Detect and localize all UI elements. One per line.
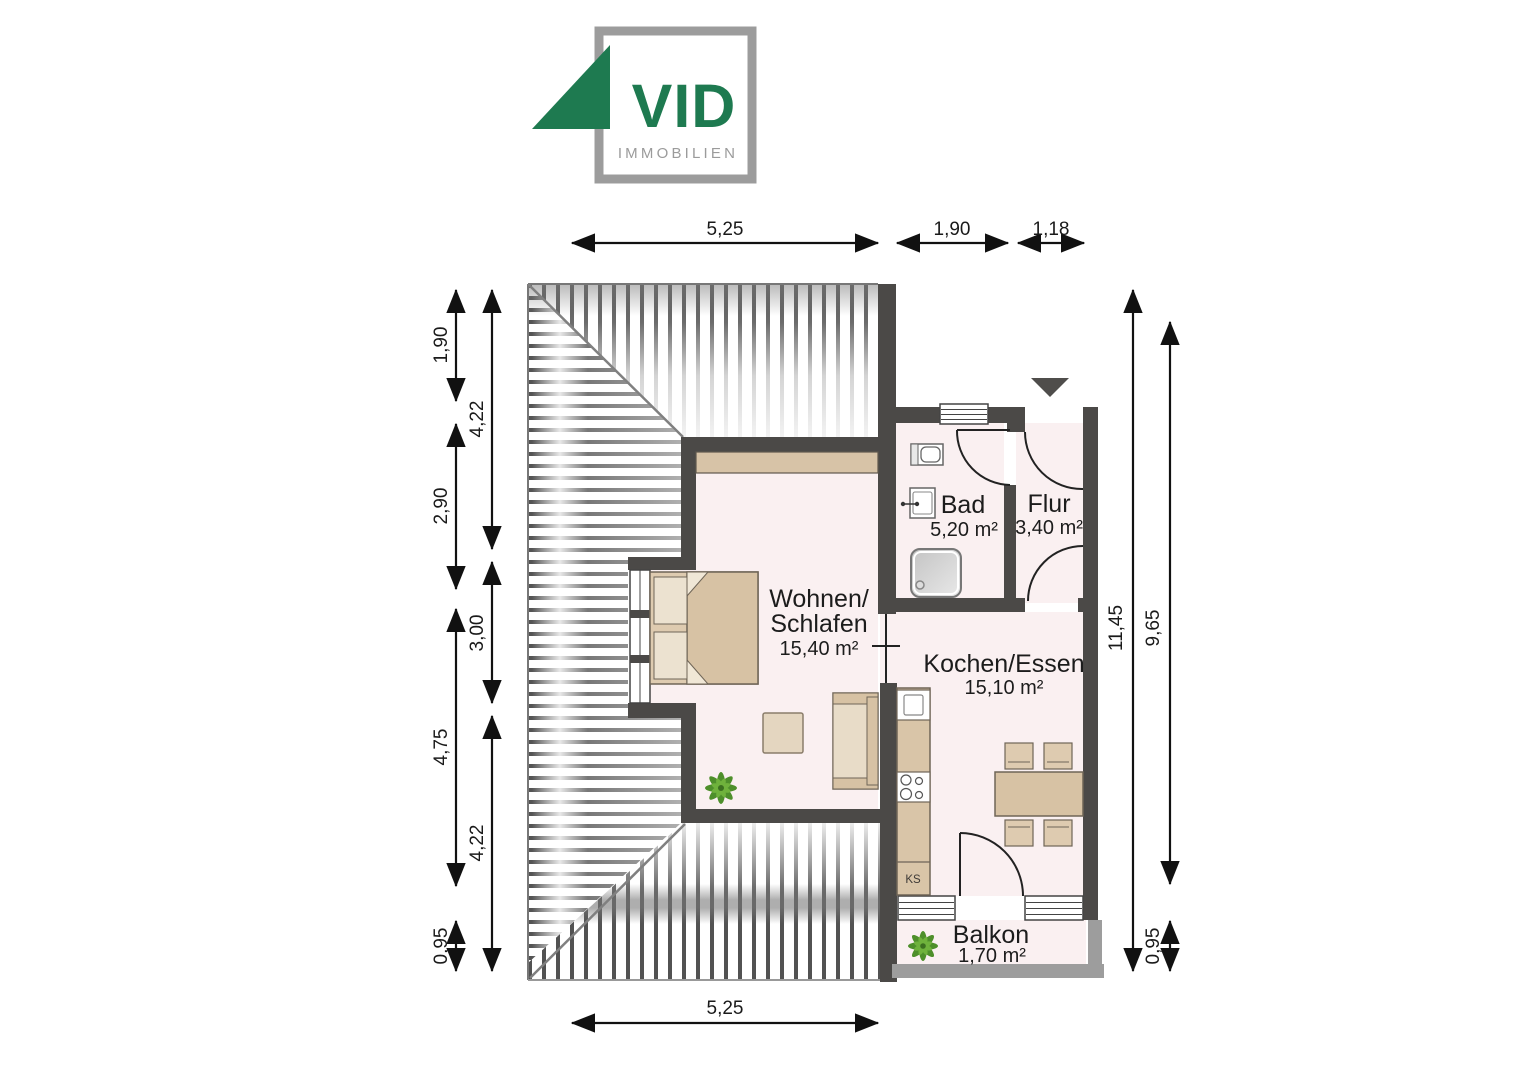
dim-label-left-outer-3: 4,75: [431, 729, 452, 766]
wall-step-top: [628, 557, 696, 570]
label-balkon-area: 1,70 m²: [958, 945, 1026, 967]
kneewall-shelf: [696, 452, 878, 473]
bed: [650, 572, 758, 684]
dining-chair: [1044, 820, 1072, 846]
bed-pillow: [654, 577, 687, 624]
dim-label-top-2: 1,90: [934, 219, 971, 240]
toilet: [911, 444, 943, 465]
dim-label-right-inner-1: 11,45: [1106, 605, 1127, 651]
dim-label-left-inner-3: 4,22: [467, 825, 488, 862]
window-kitchen-left: [898, 896, 955, 920]
label-kochen-area: 15,10 m²: [965, 677, 1044, 699]
window-kitchen-right: [1025, 896, 1083, 920]
roof-left-highlight: [532, 284, 588, 980]
bed-pillow: [654, 632, 687, 679]
window-west-band: [630, 570, 650, 703]
stove: [897, 772, 930, 802]
sofa: [833, 693, 878, 789]
dim-label-bottom-1: 5,25: [707, 998, 744, 1019]
dim-label-left-inner-1: 4,22: [467, 401, 488, 438]
wall-east: [1083, 407, 1098, 920]
coffee-table: [763, 713, 803, 753]
sofa-back: [867, 697, 878, 785]
plant-living: [705, 772, 737, 804]
label-flur-area: 3,40 m²: [1015, 517, 1083, 539]
wall-wohnen-bottom: [681, 809, 880, 823]
roof-top-grayband: [528, 284, 878, 316]
wall-bad-flur-divider: [1004, 485, 1016, 598]
dim-label-left-outer-1: 1,90: [431, 327, 452, 364]
kitchen-counter: KS: [897, 688, 930, 895]
company-logo: VID IMMOBILIEN: [532, 31, 752, 179]
bed-blanket: [687, 572, 758, 684]
dining-chair: [1005, 820, 1033, 846]
window-mullion: [630, 655, 650, 663]
floorplan-page: KS: [0, 0, 1528, 1080]
window-bad: [940, 404, 988, 424]
logo-brand-text: VID: [632, 72, 737, 140]
dim-label-left-outer-4: 0,95: [431, 928, 452, 965]
label-wohnen-line2: Schlafen: [770, 610, 867, 638]
shower-drain: [916, 581, 924, 589]
dining-chair: [1005, 743, 1033, 769]
wall-wohnen-top: [681, 437, 895, 452]
wall-wohnen-west-lower: [681, 703, 696, 823]
label-kochen-name: Kochen/Essen: [923, 650, 1084, 678]
dim-label-left-outer-2: 2,90: [431, 488, 452, 525]
plant-balcony: [908, 931, 938, 961]
wall-wohnen-west-upper: [681, 437, 696, 563]
entrance-arrow-icon: [1031, 378, 1069, 397]
dining-chair: [1044, 743, 1072, 769]
label-bad-area: 5,20 m²: [930, 519, 998, 541]
dim-label-top-3: 1,18: [1033, 219, 1070, 240]
floorplan-svg: KS: [0, 0, 1528, 1080]
sofa-seat: [833, 704, 867, 778]
wall-kitchen-west: [880, 683, 897, 982]
dim-label-top-1: 5,25: [707, 219, 744, 240]
label-wohnen-area: 15,40 m²: [780, 638, 859, 660]
kitchen-sink: [897, 690, 930, 720]
dining-table: [995, 772, 1083, 816]
dim-label-left-inner-2: 3,00: [467, 615, 488, 652]
window-mullion: [630, 610, 650, 618]
label-bad-name: Bad: [941, 491, 985, 519]
wall-balkon-right: [1088, 920, 1102, 968]
dim-label-right-outer-2: 0,95: [1143, 928, 1164, 965]
logo-subtitle-text: IMMOBILIEN: [618, 145, 738, 162]
label-flur-name: Flur: [1027, 490, 1070, 518]
fridge-label: KS: [905, 874, 921, 886]
label-wohnen-line1: Wohnen/: [769, 585, 869, 613]
dim-label-right-outer-1: 9,65: [1143, 610, 1164, 647]
wall-bad-bottom: [880, 598, 1025, 612]
shower: [911, 549, 961, 597]
